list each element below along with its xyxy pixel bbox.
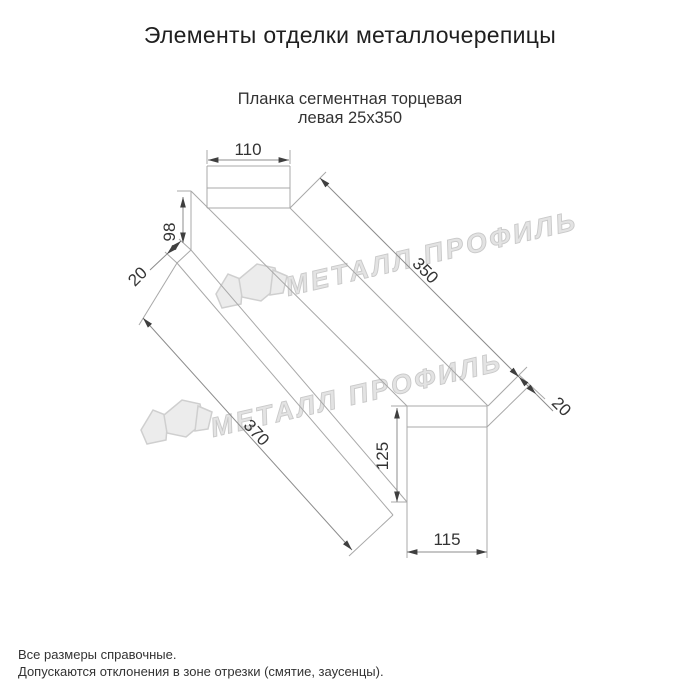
dim-far-tab-width: 115 [433, 530, 460, 549]
watermark-2: МЕТАЛЛ ПРОФИЛЬ [141, 346, 506, 444]
footer-note-2: Допускаются отклонения в зоне отрезки (с… [18, 663, 384, 680]
dim-far-hem: 20 [548, 393, 575, 420]
dimension-labels: 110 98 20 350 20 370 125 115 [124, 140, 575, 549]
footer-notes: Все размеры справочные. Допускаются откл… [18, 646, 384, 680]
technical-drawing: МЕТАЛЛ ПРОФИЛЬ МЕТАЛЛ ПРОФИЛЬ [0, 0, 700, 700]
footer-note-1: Все размеры справочные. [18, 646, 384, 663]
dim-near-hem: 20 [124, 263, 151, 290]
dim-near-tab-width: 110 [234, 140, 261, 159]
watermark-text-1: МЕТАЛЛ ПРОФИЛЬ [283, 205, 581, 301]
page: Элементы отделки металлочерепицы Планка … [0, 0, 700, 700]
metall-profil-logo-icon [216, 264, 287, 308]
dim-far-tab-height: 125 [373, 442, 392, 470]
dim-near-side-height: 98 [160, 223, 179, 242]
metall-profil-logo-icon [141, 400, 212, 444]
